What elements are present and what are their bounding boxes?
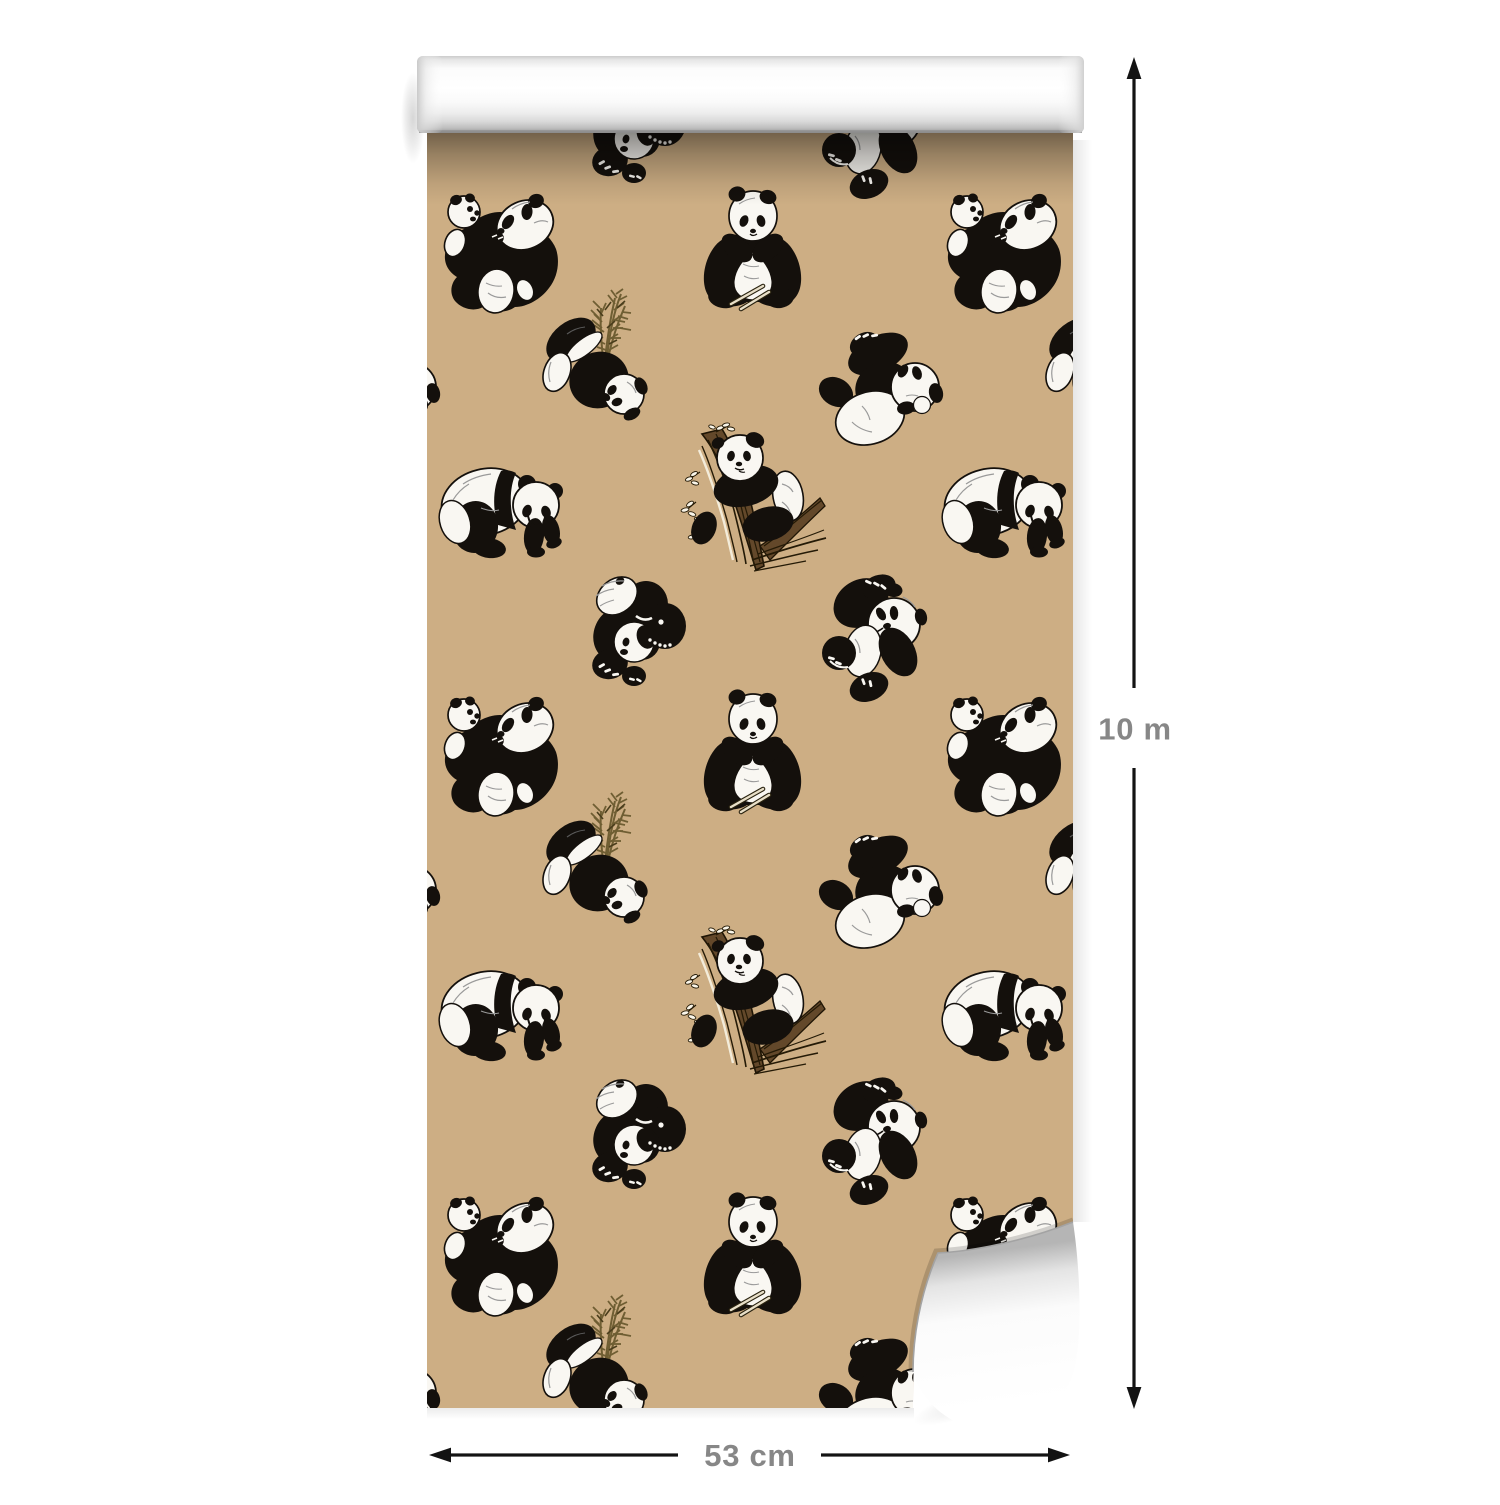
svg-text:10 m: 10 m	[1098, 712, 1171, 747]
svg-text:53 cm: 53 cm	[704, 1438, 795, 1473]
